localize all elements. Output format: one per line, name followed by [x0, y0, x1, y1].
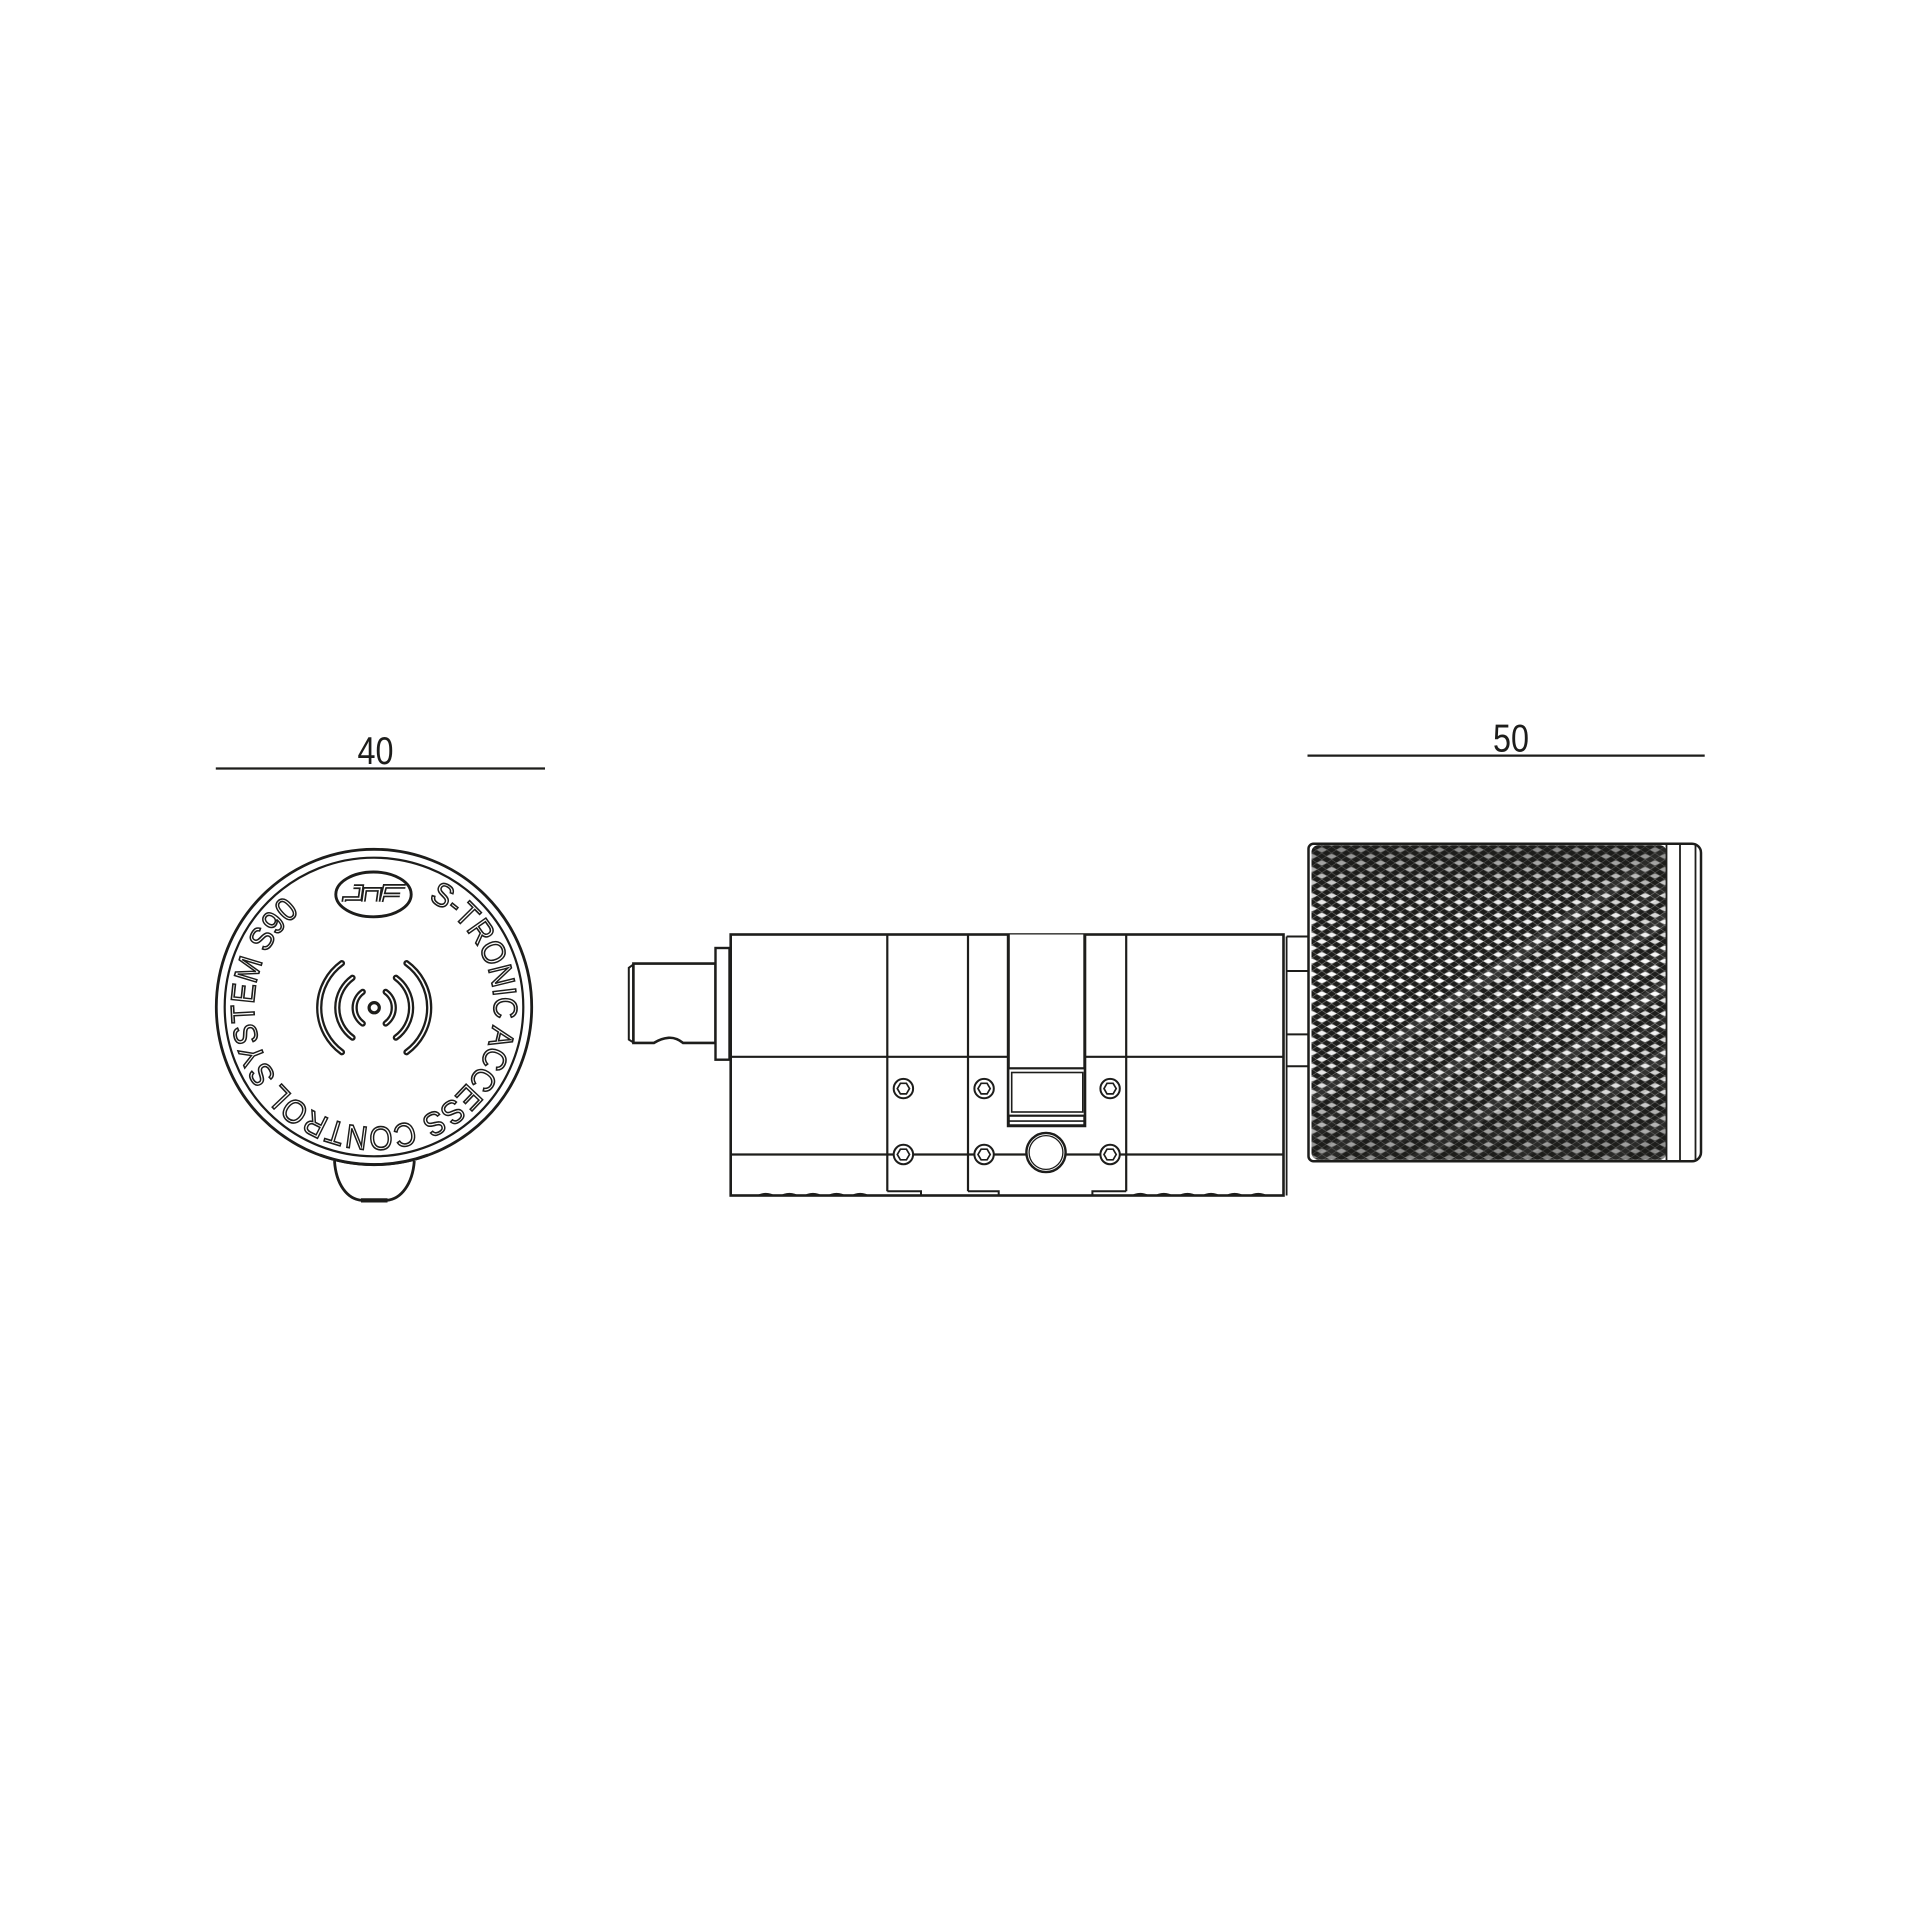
svg-text:40: 40 [358, 730, 394, 773]
svg-text:50: 50 [1493, 718, 1529, 761]
